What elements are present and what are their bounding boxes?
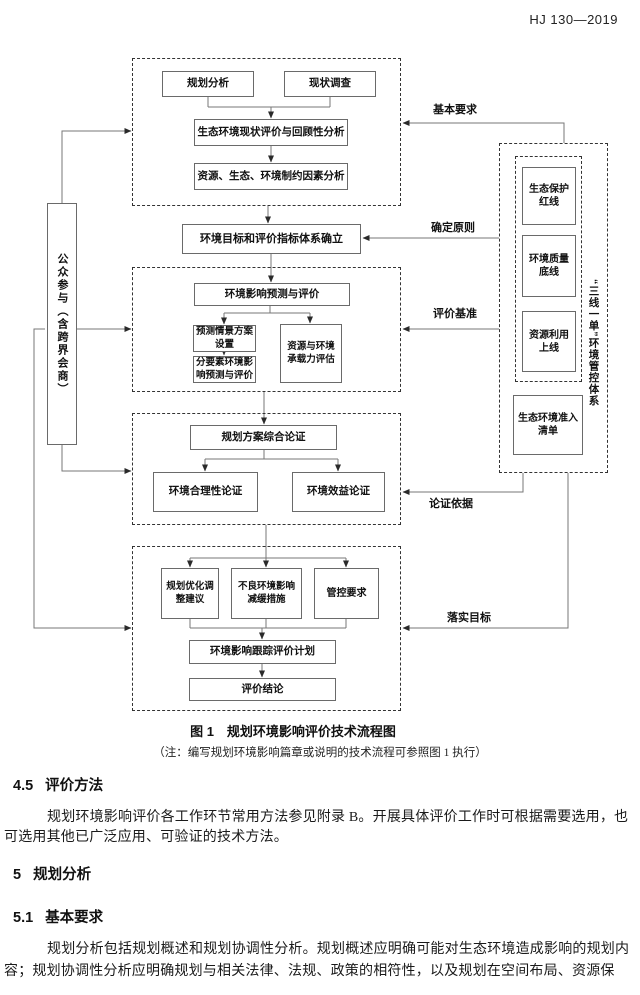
node-mitigation-measures: 不良环境影响减缓措施 <box>231 568 302 619</box>
node-planning-analysis: 规划分析 <box>162 71 254 97</box>
edge-label-determine-principles: 确定原则 <box>413 219 493 235</box>
paragraph-line: 可选用其他已广泛应用、可验证的技术方法。 <box>4 826 288 846</box>
node-eco-redline: 生态保护红线 <box>522 167 576 225</box>
paragraph-line: 容；规划协调性分析应明确规划与相关法律、法规、政策的相符性，以及规划在空间布局、… <box>4 960 615 980</box>
node-public-participation: 公众参与（含跨界会商） <box>47 203 77 445</box>
section-title: 基本要求 <box>45 906 103 927</box>
node-resource-upperline: 资源利用上线 <box>522 311 576 372</box>
node-control-requirements: 管控要求 <box>314 568 379 619</box>
edge-label-implement-goals: 落实目标 <box>429 609 509 625</box>
node-conclusion: 评价结论 <box>189 678 336 701</box>
node-status-survey: 现状调查 <box>284 71 376 97</box>
node-eco-status-eval: 生态环境现状评价与回顾性分析 <box>194 119 348 146</box>
node-env-quality-bottomline: 环境质量底线 <box>522 235 576 297</box>
section-heading-5-1: 5.1基本要求 <box>13 906 103 927</box>
edge-label-basic-requirements: 基本要求 <box>415 101 495 117</box>
edge-label-evaluation-benchmark: 评价基准 <box>415 305 495 321</box>
node-constraint-analysis: 资源、生态、环境制约因素分析 <box>194 163 348 190</box>
paragraph-line: 规划分析包括规划概述和规划协调性分析。规划概述应明确可能对生态环境造成影响的规划… <box>47 938 629 958</box>
node-env-targets: 环境目标和评价指标体系确立 <box>182 224 361 254</box>
figure-caption: 图 1 规划环境影响评价技术流程图 <box>93 721 493 740</box>
standard-number: HJ 130—2019 <box>529 12 618 27</box>
node-comprehensive-demo: 规划方案综合论证 <box>190 425 337 450</box>
figure-note: （注：编写规划环境影响篇章或说明的技术流程可参照图 1 执行） <box>70 744 570 760</box>
node-impact-prediction: 环境影响预测与评价 <box>194 283 350 306</box>
section-number: 4.5 <box>13 778 33 794</box>
node-scenario-setting: 预测情景方案设置 <box>193 325 256 352</box>
section-heading-4-5: 4.5评价方法 <box>13 774 103 795</box>
node-tracking-plan: 环境影响跟踪评价计划 <box>189 640 336 664</box>
paragraph-line: 规划环境影响评价各工作环节常用方法参见附录 B。开展具体评价工作时可根据需要选用… <box>47 806 628 826</box>
node-factor-prediction: 分要素环境影响预测与评价 <box>193 356 256 383</box>
node-carrying-capacity: 资源与环境承载力评估 <box>280 324 342 383</box>
section-title: 规划分析 <box>33 863 91 884</box>
three-lines-one-list-label: “三线一单”环境管控体系 <box>584 245 604 440</box>
node-access-list: 生态环境准入清单 <box>513 395 583 455</box>
section-title: 评价方法 <box>45 774 103 795</box>
section-number: 5.1 <box>13 910 33 926</box>
node-env-benefit: 环境效益论证 <box>292 472 385 512</box>
document-page: HJ 130—2019 <box>0 0 640 995</box>
node-env-rationality: 环境合理性论证 <box>153 472 258 512</box>
section-number: 5 <box>13 867 21 883</box>
section-heading-5: 5规划分析 <box>13 863 91 884</box>
edge-label-demonstration-basis: 论证依据 <box>411 495 491 511</box>
public-participation-label: 公众参与（含跨界会商） <box>54 253 70 396</box>
node-optimization-advice: 规划优化调整建议 <box>161 568 219 619</box>
